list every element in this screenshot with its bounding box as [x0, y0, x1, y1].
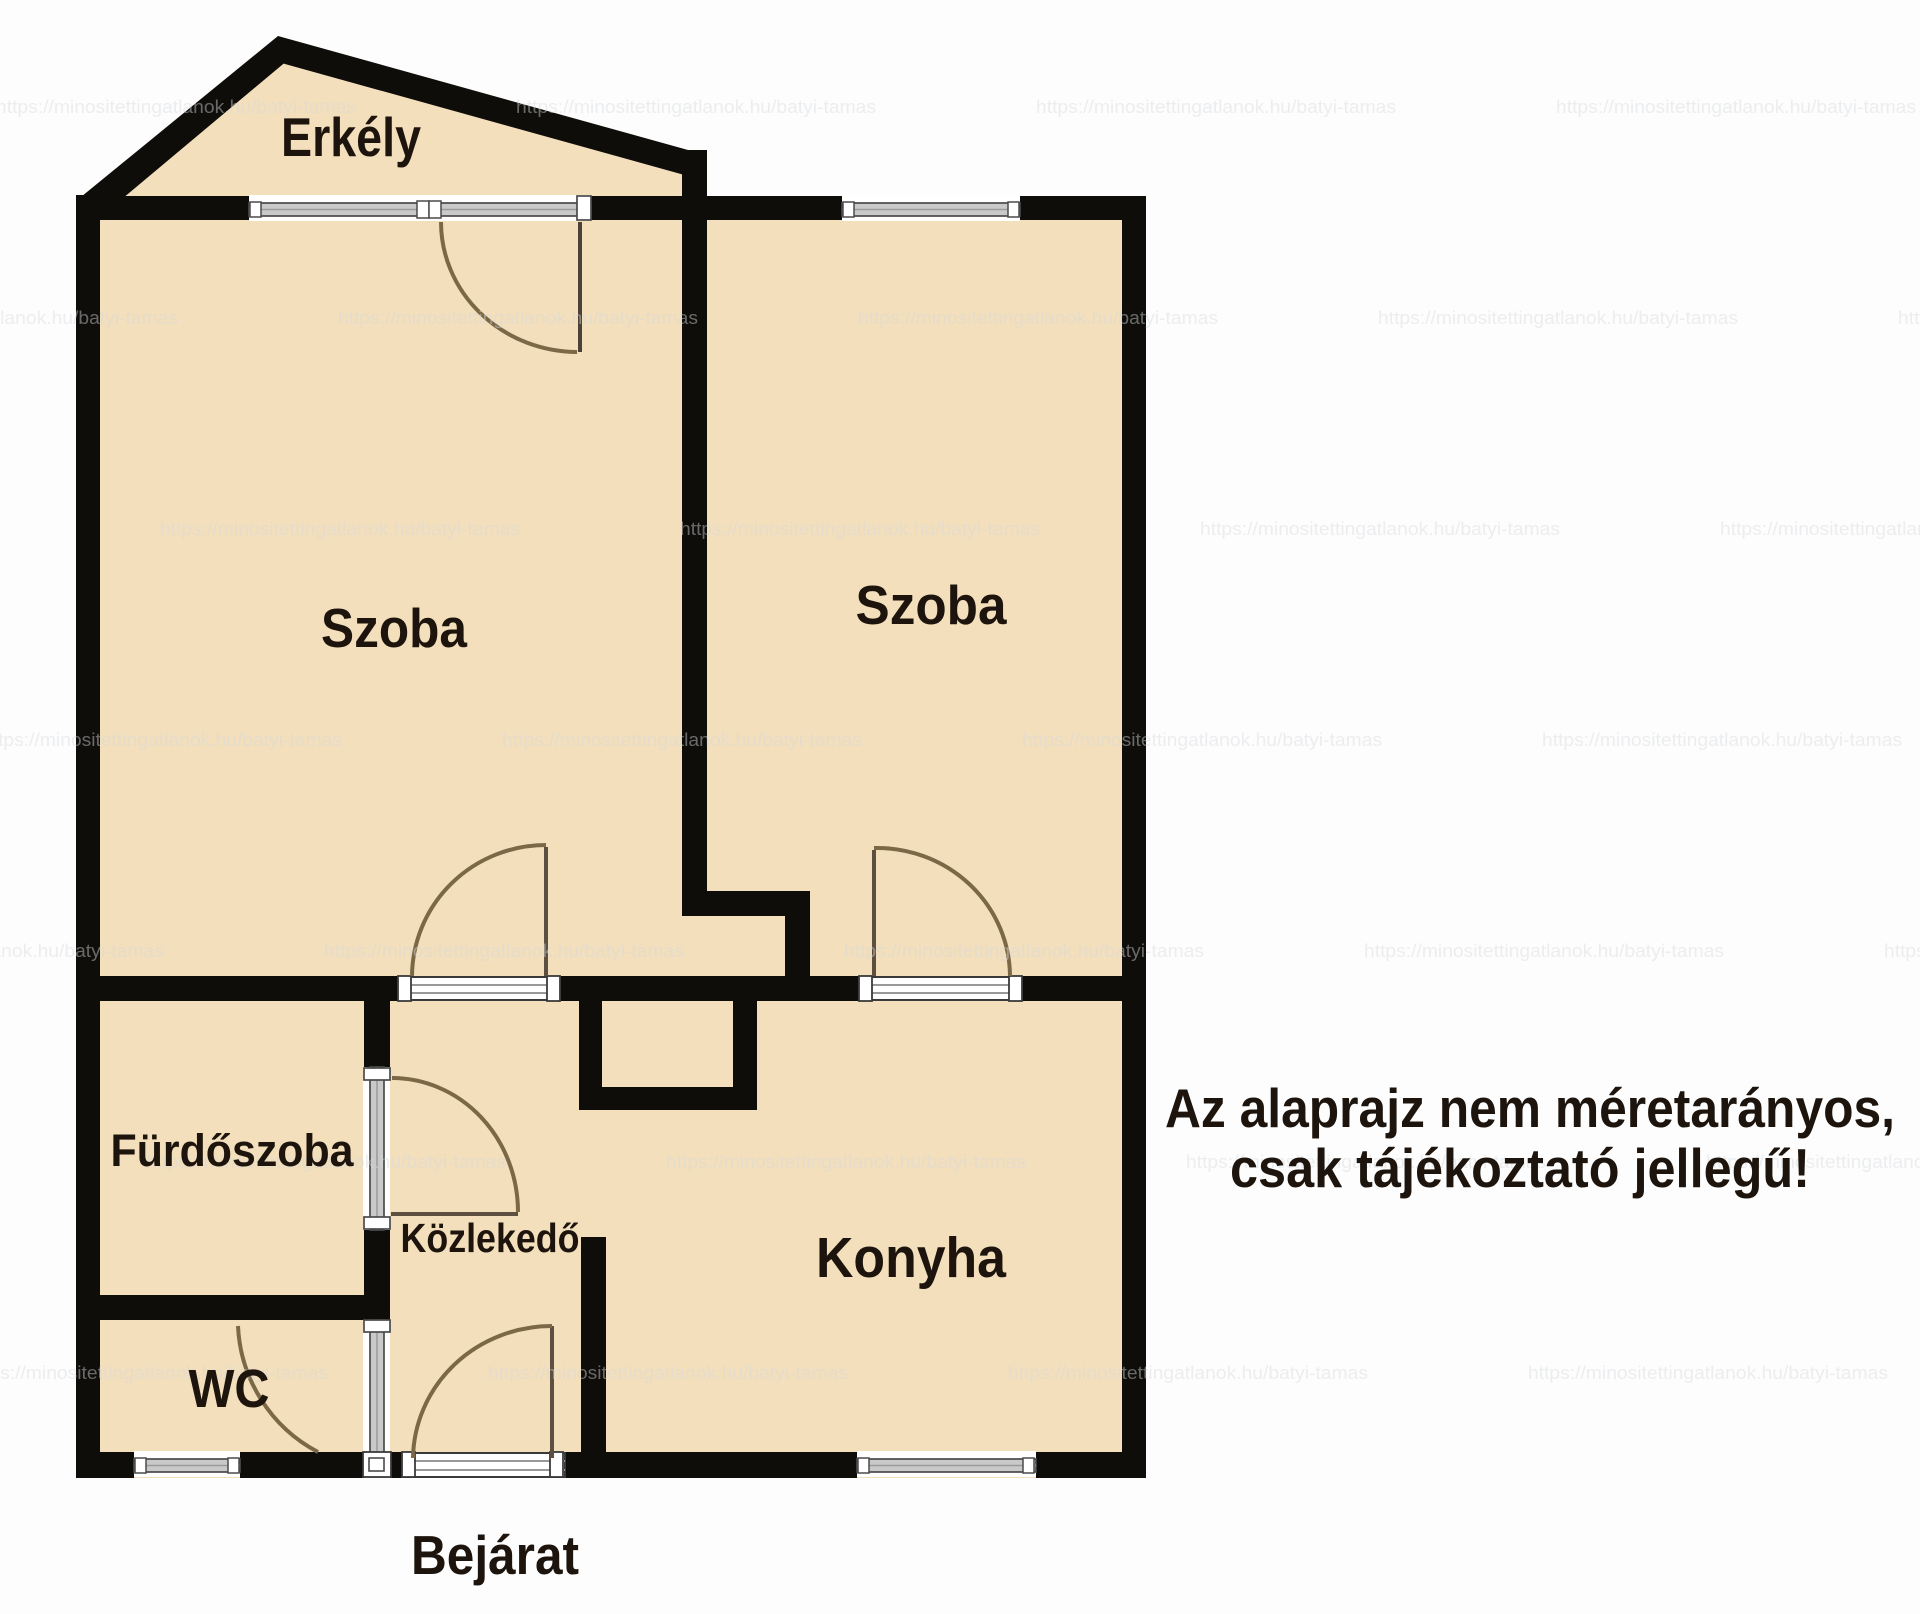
svg-text:Erkély: Erkély: [281, 106, 421, 168]
svg-text:https://minositettingatlanok.h: https://minositettingatlanok.hu/batyi-ta…: [1528, 1362, 1888, 1383]
svg-text:https://minositettingatlanok.h: https://minositettingatlanok.hu/batyi-ta…: [1378, 307, 1738, 328]
svg-text:Fürdőszoba: Fürdőszoba: [111, 1125, 355, 1176]
svg-text:https://minositettingatlanok.h: https://minositettingatlanok.hu/batyi-ta…: [1884, 940, 1920, 961]
svg-text:https://minositettingatlanok.h: https://minositettingatlanok.hu/batyi-ta…: [1036, 96, 1396, 117]
svg-text:Szoba: Szoba: [321, 597, 467, 659]
svg-text:https://minositettingatlanok.h: https://minositettingatlanok.hu/batyi-ta…: [338, 307, 698, 328]
svg-text:https://minositettingatlanok.h: https://minositettingatlanok.hu/batyi-ta…: [844, 940, 1204, 961]
svg-text:https://minositettingatlanok.h: https://minositettingatlanok.hu/batyi-ta…: [1364, 940, 1724, 961]
svg-text:https://minositettingatlanok.h: https://minositettingatlanok.hu/batyi-ta…: [0, 1362, 328, 1383]
svg-text:WC: WC: [189, 1359, 270, 1419]
svg-text:https://minositettingatlanok.h: https://minositettingatlanok.hu/batyi-ta…: [1022, 729, 1382, 750]
svg-text:https://minositettingatlanok.h: https://minositettingatlanok.hu/batyi-ta…: [502, 729, 862, 750]
svg-text:Közlekedő: Közlekedő: [401, 1215, 580, 1261]
svg-text:https://minositettingatlanok.h: https://minositettingatlanok.hu/batyi-ta…: [516, 96, 876, 117]
svg-text:https://minositettingatlanok.h: https://minositettingatlanok.hu/batyi-ta…: [858, 307, 1218, 328]
svg-text:https://minositettingatlanok.h: https://minositettingatlanok.hu/batyi-ta…: [666, 1151, 1026, 1172]
svg-text:https://minositettingatlanok.h: https://minositettingatlanok.hu/batyi-ta…: [0, 307, 178, 328]
svg-text:Az alaprajz nem méretarányos,: Az alaprajz nem méretarányos,: [1165, 1077, 1895, 1139]
svg-text:https://minositettingatlanok.h: https://minositettingatlanok.hu/batyi-ta…: [680, 518, 1040, 539]
svg-text:csak tájékoztató jellegű!: csak tájékoztató jellegű!: [1230, 1137, 1810, 1199]
svg-text:https://minositettingatlanok.h: https://minositettingatlanok.hu/batyi-ta…: [1898, 307, 1920, 328]
svg-text:Bejárat: Bejárat: [411, 1524, 579, 1586]
svg-text:https://minositettingatlanok.h: https://minositettingatlanok.hu/batyi-ta…: [160, 518, 520, 539]
svg-text:https://minositettingatlanok.h: https://minositettingatlanok.hu/batyi-ta…: [1542, 729, 1902, 750]
svg-text:https://minositettingatlanok.h: https://minositettingatlanok.hu/batyi-ta…: [488, 1362, 848, 1383]
svg-text:Szoba: Szoba: [856, 574, 1007, 636]
svg-text:https://minositettingatlanok.h: https://minositettingatlanok.hu/batyi-ta…: [1720, 518, 1920, 539]
svg-text:https://minositettingatlanok.h: https://minositettingatlanok.hu/batyi-ta…: [0, 729, 342, 750]
svg-text:https://minositettingatlanok.h: https://minositettingatlanok.hu/batyi-ta…: [1200, 518, 1560, 539]
svg-text:https://minositettingatlanok.h: https://minositettingatlanok.hu/batyi-ta…: [1556, 96, 1916, 117]
svg-text:https://minositettingatlanok.h: https://minositettingatlanok.hu/batyi-ta…: [0, 940, 164, 961]
svg-text:https://minositettingatlanok.h: https://minositettingatlanok.hu/batyi-ta…: [1008, 1362, 1368, 1383]
svg-text:https://minositettingatlanok.h: https://minositettingatlanok.hu/batyi-ta…: [324, 940, 684, 961]
svg-text:Konyha: Konyha: [816, 1226, 1007, 1290]
